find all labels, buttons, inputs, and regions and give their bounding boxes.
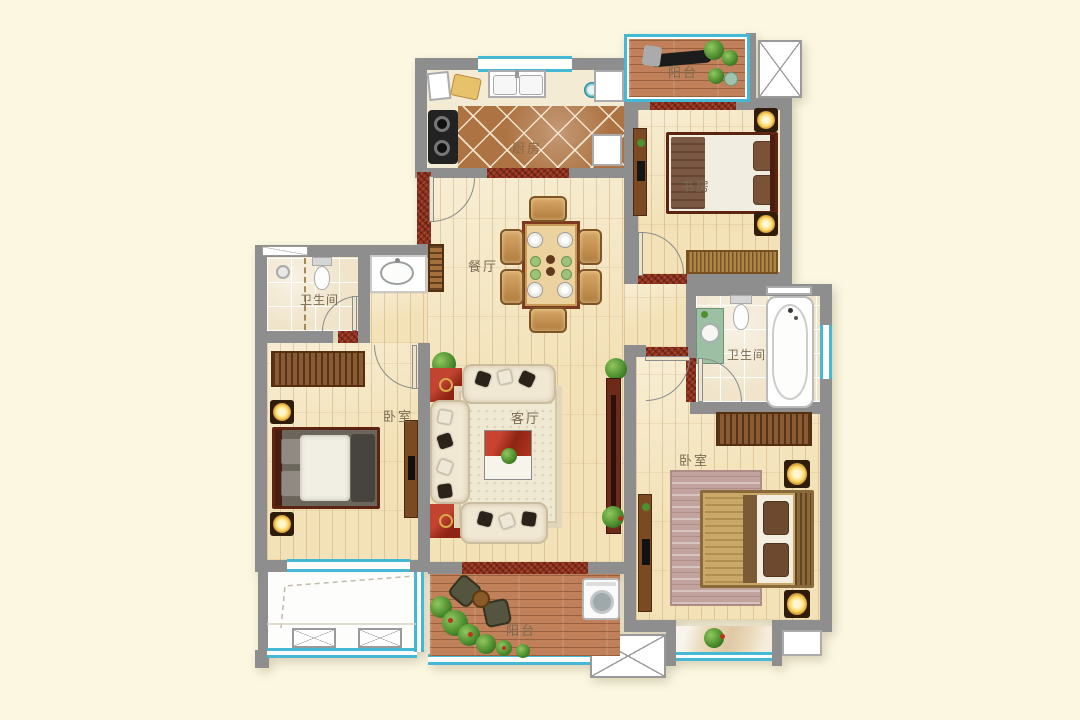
dining-chair: [578, 269, 602, 305]
cushion: [437, 483, 453, 499]
cushion: [521, 511, 537, 527]
toilet: [730, 295, 752, 304]
bedroom-left-window: [287, 559, 410, 572]
wall-bath-left-right: [358, 257, 370, 343]
entry-door-leaf: [429, 176, 434, 222]
dining-chair: [529, 196, 567, 222]
flower-icon: [618, 516, 623, 521]
bed-double: [272, 427, 380, 509]
flower-icon: [720, 634, 725, 639]
room-label-bedroom-left: 卧室: [383, 406, 413, 425]
tv-cabinet: [638, 494, 652, 612]
wall-kitchen-left: [415, 58, 427, 178]
wall-left-outer: [255, 245, 267, 572]
brick-bedroom-left-door: [338, 331, 358, 343]
nightstand-lamp: [270, 512, 294, 536]
vanity-sink: [380, 261, 414, 285]
room-label-bath-right: 卫生间: [727, 346, 766, 363]
plant-icon: [476, 634, 496, 654]
bath-left-door-leaf: [352, 296, 357, 331]
plate-icon: [527, 232, 543, 248]
room-label-bedroom-right: 卧室: [679, 450, 709, 469]
nightstand-lamp: [270, 400, 294, 424]
wall-bedroom-right-top-stub: [624, 345, 646, 357]
bowl-icon: [546, 255, 555, 264]
dining-chair: [500, 269, 524, 305]
ac-box-top-right: [758, 40, 802, 98]
floor-plan: 阳台 书房 厨房 餐厅 卫生间 卧室 客厅 卫生间 卧室 阳台: [0, 0, 1080, 720]
wall-bedroom-left-right: [418, 343, 430, 565]
wall-living-right: [624, 345, 636, 632]
bedroom-right-door-leaf: [645, 356, 690, 361]
dining-chair: [578, 229, 602, 265]
duvet: [300, 435, 350, 501]
patio-table: [472, 590, 490, 608]
plant-icon: [516, 644, 530, 658]
coffee-table: [484, 430, 532, 480]
tap-icon: [395, 258, 400, 263]
wall-balcony-sill-right: [588, 562, 636, 574]
brick-living-balcony-sill: [462, 562, 588, 574]
brick-kitchen-threshold: [487, 168, 569, 178]
wall-bath-left-bottom: [255, 331, 333, 343]
room-label-bath-left: 卫生间: [300, 291, 339, 308]
bay-window-floor: [676, 626, 772, 654]
kitchen-counter-unit: [592, 134, 622, 166]
bay-window-glass: [676, 652, 772, 661]
bath-right-door-leaf: [698, 358, 703, 402]
plant-icon: [704, 40, 724, 60]
wall-balcony-sill-left: [428, 562, 462, 574]
kitchen-sink: [488, 70, 546, 98]
wardrobe: [271, 351, 365, 387]
wall-kitchen-bottom-right: [569, 168, 638, 178]
nightstand-lamp: [784, 590, 810, 618]
blanket: [705, 495, 743, 583]
room-label-balcony-bottom: 阳台: [506, 620, 536, 639]
plate-icon: [557, 282, 573, 298]
nightstand-lamp: [784, 460, 810, 488]
stove: [428, 110, 458, 164]
blanket: [671, 137, 705, 209]
small-dish-icon: [561, 256, 572, 267]
cushion: [437, 409, 453, 425]
small-dish-icon: [561, 269, 572, 280]
wall-bay-left-stub: [666, 620, 676, 666]
plant-icon: [722, 50, 738, 66]
study-door-leaf: [638, 232, 643, 276]
study-media-board: [633, 128, 647, 216]
pillow: [763, 501, 789, 535]
tv-cabinet: [404, 420, 418, 518]
pot-icon: [724, 72, 738, 86]
vanity-counter-right: [696, 308, 724, 364]
room-label-dining: 餐厅: [468, 256, 498, 275]
bath-left-window: [262, 246, 308, 256]
bath-right-window: [820, 325, 832, 379]
cushion: [497, 369, 514, 386]
toilet-bowl: [314, 266, 330, 290]
dining-chair: [500, 229, 524, 265]
radiator: [686, 250, 778, 274]
wardrobe: [716, 412, 812, 446]
fridge: [594, 70, 624, 102]
washing-machine: [582, 578, 620, 620]
shower-head-icon: [276, 265, 290, 279]
wall-study-right: [780, 98, 792, 290]
study-bed: [666, 132, 778, 214]
toilet-bowl: [733, 304, 749, 330]
room-label-balcony-top: 阳台: [668, 62, 698, 81]
small-dish-icon: [530, 256, 541, 267]
brick-study-threshold: [638, 274, 687, 284]
plant-icon: [605, 358, 627, 380]
bathtub: [766, 296, 814, 408]
hallway-floor: [624, 284, 686, 347]
toilet: [312, 257, 332, 266]
bowl-icon: [546, 267, 555, 276]
plate-icon: [527, 282, 543, 298]
flower-icon: [502, 646, 506, 650]
room-label-living: 客厅: [511, 408, 541, 427]
nightstand-lamp: [754, 108, 778, 132]
pillow: [763, 543, 789, 577]
room-label-study: 书房: [681, 176, 711, 195]
small-dish-icon: [530, 269, 541, 280]
nightstand-lamp: [754, 212, 778, 236]
bath-right-top-window: [766, 286, 812, 295]
flower-icon: [468, 632, 473, 637]
plate-icon: [557, 232, 573, 248]
platform-dashed-outline: [267, 572, 416, 652]
bedroom-left-door-leaf: [412, 345, 417, 389]
wall-bedroom-left-bottom-l: [255, 560, 289, 572]
exercise-mat-icon: [642, 45, 663, 67]
flower-icon: [448, 618, 453, 623]
bed-double: [700, 490, 814, 588]
kitchen-cabinet: [427, 71, 452, 101]
shoe-cabinet: [428, 244, 444, 292]
ac-box-bottom-right: [782, 630, 822, 656]
room-label-kitchen: 厨房: [512, 138, 542, 157]
plant-icon: [708, 68, 724, 84]
dining-chair: [529, 307, 567, 333]
wall-bedroom-right-outer: [820, 410, 832, 632]
